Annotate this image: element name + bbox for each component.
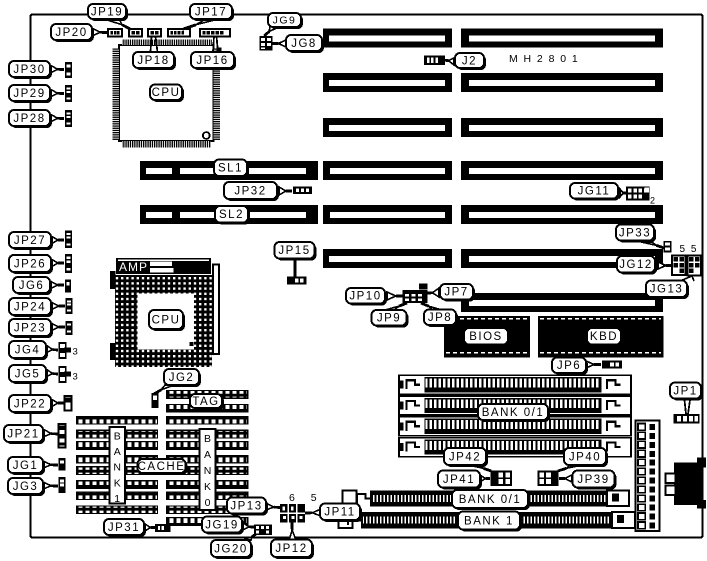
svg-text:3: 3 xyxy=(73,347,78,358)
svg-text:1: 1 xyxy=(114,493,120,505)
svg-text:JP28: JP28 xyxy=(13,113,45,125)
svg-text:JP31: JP31 xyxy=(108,522,140,534)
svg-text:3: 3 xyxy=(73,372,78,383)
svg-text:JP42: JP42 xyxy=(449,451,481,463)
svg-text:CPU: CPU xyxy=(152,87,181,99)
svg-text:JP21: JP21 xyxy=(7,428,39,440)
svg-text:K: K xyxy=(204,481,211,493)
svg-text:JP41: JP41 xyxy=(443,474,475,486)
svg-text:JG3: JG3 xyxy=(13,481,39,493)
svg-text:JG13: JG13 xyxy=(650,284,684,296)
svg-text:KBD: KBD xyxy=(590,331,618,343)
svg-text:0: 0 xyxy=(205,497,211,509)
svg-text:JP23: JP23 xyxy=(14,322,46,334)
svg-text:BANK 0/1: BANK 0/1 xyxy=(459,494,522,506)
svg-text:5 5: 5 5 xyxy=(680,244,698,255)
svg-text:K: K xyxy=(114,477,121,489)
svg-text:JG5: JG5 xyxy=(15,368,41,380)
svg-text:JG6: JG6 xyxy=(19,280,45,292)
svg-text:JP11: JP11 xyxy=(324,507,355,519)
svg-text:6 5: 6 5 xyxy=(289,492,323,504)
svg-text:JP8: JP8 xyxy=(428,312,452,324)
svg-text:AMP: AMP xyxy=(119,260,148,274)
svg-text:JG19: JG19 xyxy=(205,519,239,531)
svg-text:JP39: JP39 xyxy=(577,474,609,486)
svg-text:N: N xyxy=(204,465,212,477)
svg-text:JP17: JP17 xyxy=(195,6,227,18)
svg-text:B: B xyxy=(114,431,121,443)
svg-text:JP27: JP27 xyxy=(14,235,46,247)
svg-text:JP40: JP40 xyxy=(569,451,601,463)
svg-text:BANK 0/1: BANK 0/1 xyxy=(482,407,545,419)
svg-text:J2: J2 xyxy=(462,55,477,67)
svg-text:BANK 1: BANK 1 xyxy=(464,515,514,527)
svg-text:JG8: JG8 xyxy=(291,38,317,50)
svg-text:JP15: JP15 xyxy=(278,245,310,257)
svg-text:CPU: CPU xyxy=(152,314,181,326)
svg-text:JP32: JP32 xyxy=(234,185,266,197)
svg-text:JP1: JP1 xyxy=(673,385,697,397)
svg-text:JG2: JG2 xyxy=(169,372,195,384)
svg-text:JP20: JP20 xyxy=(55,27,87,39)
svg-text:A: A xyxy=(204,449,211,461)
svg-text:JG1: JG1 xyxy=(13,460,39,472)
svg-text:SL1: SL1 xyxy=(218,163,243,175)
svg-text:JP9: JP9 xyxy=(377,313,401,325)
svg-text:JP19: JP19 xyxy=(91,6,123,18)
svg-text:JP22: JP22 xyxy=(14,398,46,410)
svg-text:JG12: JG12 xyxy=(619,259,653,271)
svg-text:JP18: JP18 xyxy=(137,55,169,67)
svg-text:JP13: JP13 xyxy=(230,500,262,512)
svg-text:JP26: JP26 xyxy=(14,258,46,270)
svg-text:A: A xyxy=(114,446,121,458)
svg-text:JG20: JG20 xyxy=(214,543,248,555)
svg-text:BIOS: BIOS xyxy=(469,331,502,343)
svg-text:JP33: JP33 xyxy=(619,227,651,239)
svg-text:TAG: TAG xyxy=(192,396,219,408)
svg-text:JP12: JP12 xyxy=(275,543,307,555)
svg-text:JP7: JP7 xyxy=(444,287,468,299)
svg-text:MH2801: MH2801 xyxy=(509,53,584,65)
svg-text:CACHE: CACHE xyxy=(138,461,186,473)
svg-text:JG9: JG9 xyxy=(273,15,297,27)
svg-text:SL2: SL2 xyxy=(219,209,244,221)
svg-text:JP30: JP30 xyxy=(13,64,45,76)
svg-text:JP6: JP6 xyxy=(557,360,581,372)
svg-text:JP24: JP24 xyxy=(14,301,46,313)
svg-text:B: B xyxy=(204,433,211,445)
svg-text:2: 2 xyxy=(650,196,655,206)
svg-text:JP16: JP16 xyxy=(196,55,228,67)
svg-text:JP29: JP29 xyxy=(13,88,45,100)
svg-text:JG11: JG11 xyxy=(578,186,611,198)
svg-text:JG4: JG4 xyxy=(15,344,41,356)
svg-text:N: N xyxy=(113,462,121,474)
svg-text:JP10: JP10 xyxy=(349,291,381,303)
